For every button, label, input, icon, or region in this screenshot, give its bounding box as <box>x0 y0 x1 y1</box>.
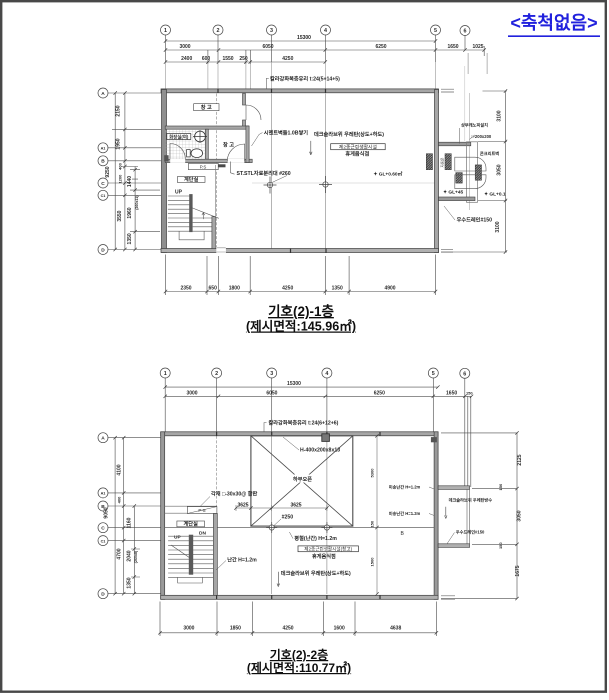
svg-text:400: 400 <box>117 162 122 169</box>
svg-text:1950: 1950 <box>116 138 122 149</box>
svg-text:3625: 3625 <box>290 503 301 509</box>
svg-text:1350: 1350 <box>332 285 343 291</box>
svg-text:미송난간 H=1.2m: 미송난간 H=1.2m <box>389 484 421 491</box>
svg-text:1500: 1500 <box>370 557 375 567</box>
svg-text:미송난간 H=1.2m: 미송난간 H=1.2m <box>389 510 421 517</box>
svg-text:1650: 1650 <box>447 44 458 50</box>
svg-text:✦ GL+45: ✦ GL+45 <box>443 189 463 195</box>
svg-text:데크슬라브위 우레탄(상도+하도): 데크슬라브위 우레탄(상도+하도) <box>281 569 351 577</box>
svg-text:우수드레인#150: 우수드레인#150 <box>457 216 493 224</box>
svg-text:✦ GL+0.60㎡: ✦ GL+0.60㎡ <box>373 171 402 178</box>
svg-text:A1: A1 <box>101 492 106 496</box>
svg-text:1850: 1850 <box>230 626 241 632</box>
svg-text:4700: 4700 <box>117 548 123 559</box>
svg-text:H-400x200x8x13: H-400x200x8x13 <box>300 448 340 454</box>
svg-text:6250: 6250 <box>374 390 385 396</box>
svg-text:2150: 2150 <box>116 105 122 116</box>
svg-text:4: 4 <box>324 28 327 34</box>
svg-text:1200: 1200 <box>117 174 122 184</box>
svg-text:2: 2 <box>217 28 220 34</box>
svg-text:A: A <box>101 91 105 97</box>
svg-text:3: 3 <box>270 371 273 377</box>
svg-text:데크슬라브위 우레탄(상도+하도): 데크슬라브위 우레탄(상도+하도) <box>314 130 384 138</box>
svg-text:자동문: 자동문 <box>440 157 445 168</box>
svg-text:(제시면적:110.77㎡): (제시면적:110.77㎡) <box>247 660 351 675</box>
svg-text:9050: 9050 <box>103 507 109 518</box>
svg-text:창 고: 창 고 <box>223 141 234 149</box>
svg-text:150: 150 <box>466 390 473 395</box>
svg-text:5: 5 <box>434 28 437 34</box>
svg-text:<축척없음>: <축척없음> <box>510 13 597 33</box>
svg-text:4250: 4250 <box>282 626 293 632</box>
svg-text:A1: A1 <box>101 147 106 151</box>
svg-text:(260x11): (260x11) <box>135 195 139 210</box>
svg-text:4: 4 <box>325 371 328 377</box>
svg-text:C: C <box>101 526 105 532</box>
svg-text:B: B <box>401 531 405 537</box>
svg-text:P-8: P-8 <box>198 508 206 513</box>
svg-text:3100: 3100 <box>495 221 501 232</box>
svg-text:150: 150 <box>498 483 503 490</box>
svg-text:1550: 1550 <box>222 56 233 62</box>
svg-text:400: 400 <box>117 496 122 503</box>
svg-text:휴게음식점: 휴게음식점 <box>345 150 369 158</box>
svg-text:2350: 2350 <box>180 285 191 291</box>
svg-text:B: B <box>101 159 105 165</box>
svg-text:4100: 4100 <box>117 464 123 475</box>
svg-text:UP: UP <box>174 535 181 541</box>
svg-text:4250: 4250 <box>282 56 293 62</box>
svg-text:2: 2 <box>215 371 218 377</box>
svg-text:D: D <box>101 592 105 598</box>
svg-text:휴게음식점: 휴게음식점 <box>312 552 336 560</box>
svg-text:제2종근린생활시설(창고): 제2종근린생활시설(창고) <box>304 546 352 553</box>
svg-text:1600: 1600 <box>334 626 345 632</box>
svg-text:1025: 1025 <box>472 44 483 50</box>
svg-text:15300: 15300 <box>297 35 311 41</box>
svg-text:1: 1 <box>164 371 167 377</box>
svg-text:□-200x200: □-200x200 <box>471 134 492 139</box>
svg-text:A: A <box>101 436 105 442</box>
svg-text:C: C <box>101 181 105 187</box>
svg-text:기호(2)-2층: 기호(2)-2층 <box>270 647 328 662</box>
svg-text:3000: 3000 <box>183 626 194 632</box>
svg-text:6: 6 <box>463 371 466 377</box>
svg-text:3050: 3050 <box>517 510 523 521</box>
svg-text:창 고: 창 고 <box>201 103 212 111</box>
svg-text:6250: 6250 <box>375 44 386 50</box>
svg-text:1350: 1350 <box>127 233 133 244</box>
svg-text:DN: DN <box>199 531 206 537</box>
svg-text:1800: 1800 <box>229 285 240 291</box>
svg-text:UP: UP <box>175 190 183 196</box>
svg-text:2125: 2125 <box>517 454 523 465</box>
svg-text:5300: 5300 <box>370 468 375 478</box>
svg-text:1675: 1675 <box>515 565 521 576</box>
svg-text:3550: 3550 <box>117 210 123 221</box>
svg-text:9250: 9250 <box>105 166 111 177</box>
svg-text:6050: 6050 <box>262 44 273 50</box>
svg-text:ST.STL자료분리대 #260: ST.STL자료분리대 #260 <box>237 169 291 177</box>
svg-text:1650: 1650 <box>446 390 457 396</box>
svg-text:칼라강화복층유리 t:24(6+12+6): 칼라강화복층유리 t:24(6+12+6) <box>269 419 339 427</box>
svg-text:4638: 4638 <box>390 626 401 632</box>
svg-text:C1: C1 <box>101 539 106 543</box>
svg-text:3100: 3100 <box>497 110 503 121</box>
svg-text:4250: 4250 <box>282 285 293 291</box>
svg-text:상부캐노피설치: 상부캐노피설치 <box>461 122 488 129</box>
svg-text:평철(난간) H=1.2m: 평철(난간) H=1.2m <box>294 534 337 542</box>
svg-text:화장실(여): 화장실(여) <box>169 133 189 140</box>
svg-text:칼라강화복층유리 t:24(5+14+5): 칼라강화복층유리 t:24(5+14+5) <box>270 75 340 83</box>
svg-text:2400: 2400 <box>181 56 192 62</box>
svg-text:6050: 6050 <box>266 390 277 396</box>
svg-text:#250: #250 <box>282 514 294 520</box>
svg-text:15300: 15300 <box>287 381 301 387</box>
svg-text:1160: 1160 <box>127 517 133 528</box>
svg-text:150: 150 <box>498 542 503 549</box>
svg-text:3625: 3625 <box>237 503 248 509</box>
svg-text:콘크리트벽: 콘크리트벽 <box>480 150 499 157</box>
svg-text:3: 3 <box>270 28 273 34</box>
svg-text:650: 650 <box>209 285 218 291</box>
svg-text:우수드레인#150: 우수드레인#150 <box>456 529 485 536</box>
svg-text:4900: 4900 <box>384 285 395 291</box>
svg-text:150: 150 <box>370 520 375 527</box>
svg-text:계단실: 계단실 <box>184 520 199 528</box>
svg-text:난간 H=1.2m: 난간 H=1.2m <box>227 556 257 564</box>
svg-text:3050: 3050 <box>497 164 503 175</box>
svg-text:1350: 1350 <box>127 577 133 588</box>
svg-text:계단실: 계단실 <box>184 175 199 183</box>
svg-text:제2종근린생활시설: 제2종근린생활시설 <box>339 144 377 151</box>
svg-text:1: 1 <box>164 28 167 34</box>
svg-text:데크슬라브위 우레탄방수: 데크슬라브위 우레탄방수 <box>449 497 493 504</box>
svg-text:각재 □-30x30@ 합판: 각재 □-30x30@ 합판 <box>211 490 258 498</box>
svg-text:3000: 3000 <box>179 44 190 50</box>
svg-text:✦ GL+0.1: ✦ GL+0.1 <box>484 191 506 197</box>
svg-text:1960: 1960 <box>127 207 133 218</box>
svg-text:2040: 2040 <box>127 550 133 561</box>
svg-text:D: D <box>101 247 105 253</box>
svg-text:C1: C1 <box>101 194 106 198</box>
svg-text:P.S: P.S <box>200 164 207 169</box>
svg-text:1440: 1440 <box>127 176 133 187</box>
svg-text:하부오픈: 하부오픈 <box>293 475 312 483</box>
svg-text:3000: 3000 <box>186 390 197 396</box>
svg-text:(260x8): (260x8) <box>134 550 138 563</box>
svg-text:(제시면적:145.96㎡): (제시면적:145.96㎡) <box>246 319 356 334</box>
svg-text:5: 5 <box>432 371 435 377</box>
svg-text:기호(2)-1층: 기호(2)-1층 <box>268 304 334 319</box>
svg-text:6: 6 <box>464 29 467 35</box>
svg-text:시멘트벽돌1.0B쌓기: 시멘트벽돌1.0B쌓기 <box>264 129 309 137</box>
